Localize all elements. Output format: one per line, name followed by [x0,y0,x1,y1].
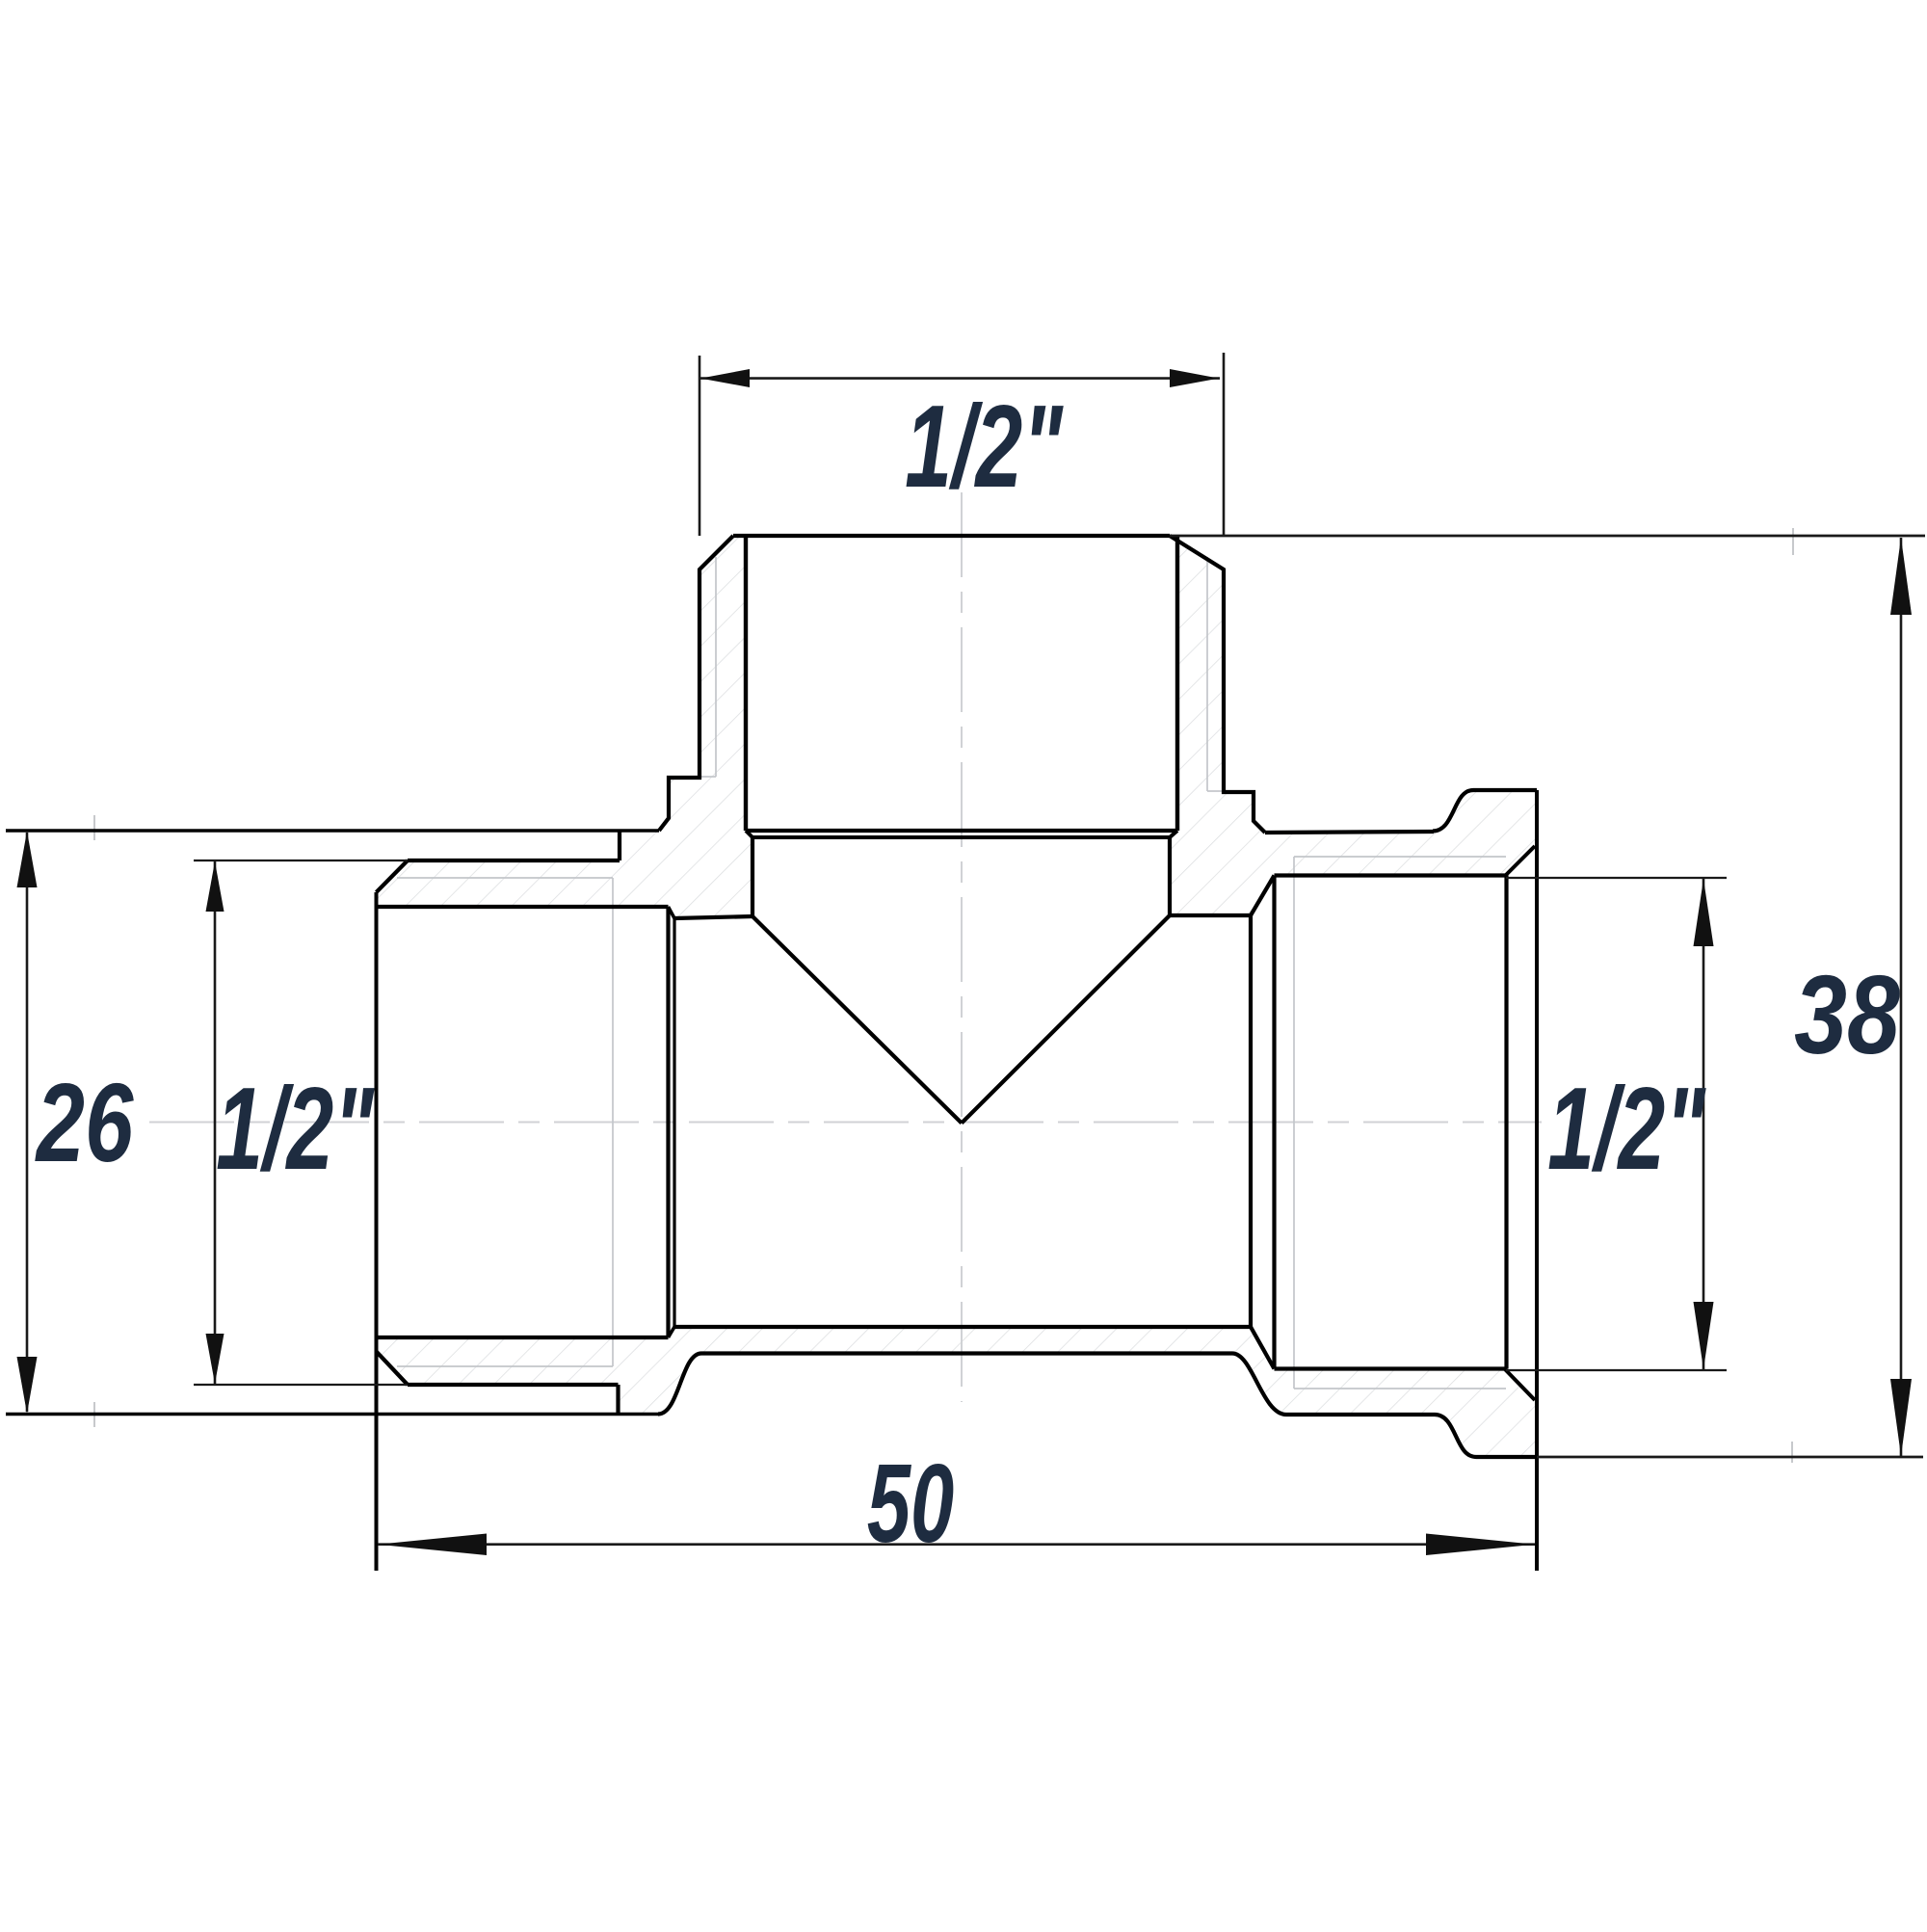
svg-text:1/2": 1/2" [1547,1063,1706,1195]
svg-text:50: 50 [867,1442,954,1567]
svg-text:1/2": 1/2" [216,1063,375,1195]
svg-text:1/2": 1/2" [905,381,1064,513]
svg-text:38: 38 [1794,952,1900,1076]
svg-text:26: 26 [35,1061,134,1185]
